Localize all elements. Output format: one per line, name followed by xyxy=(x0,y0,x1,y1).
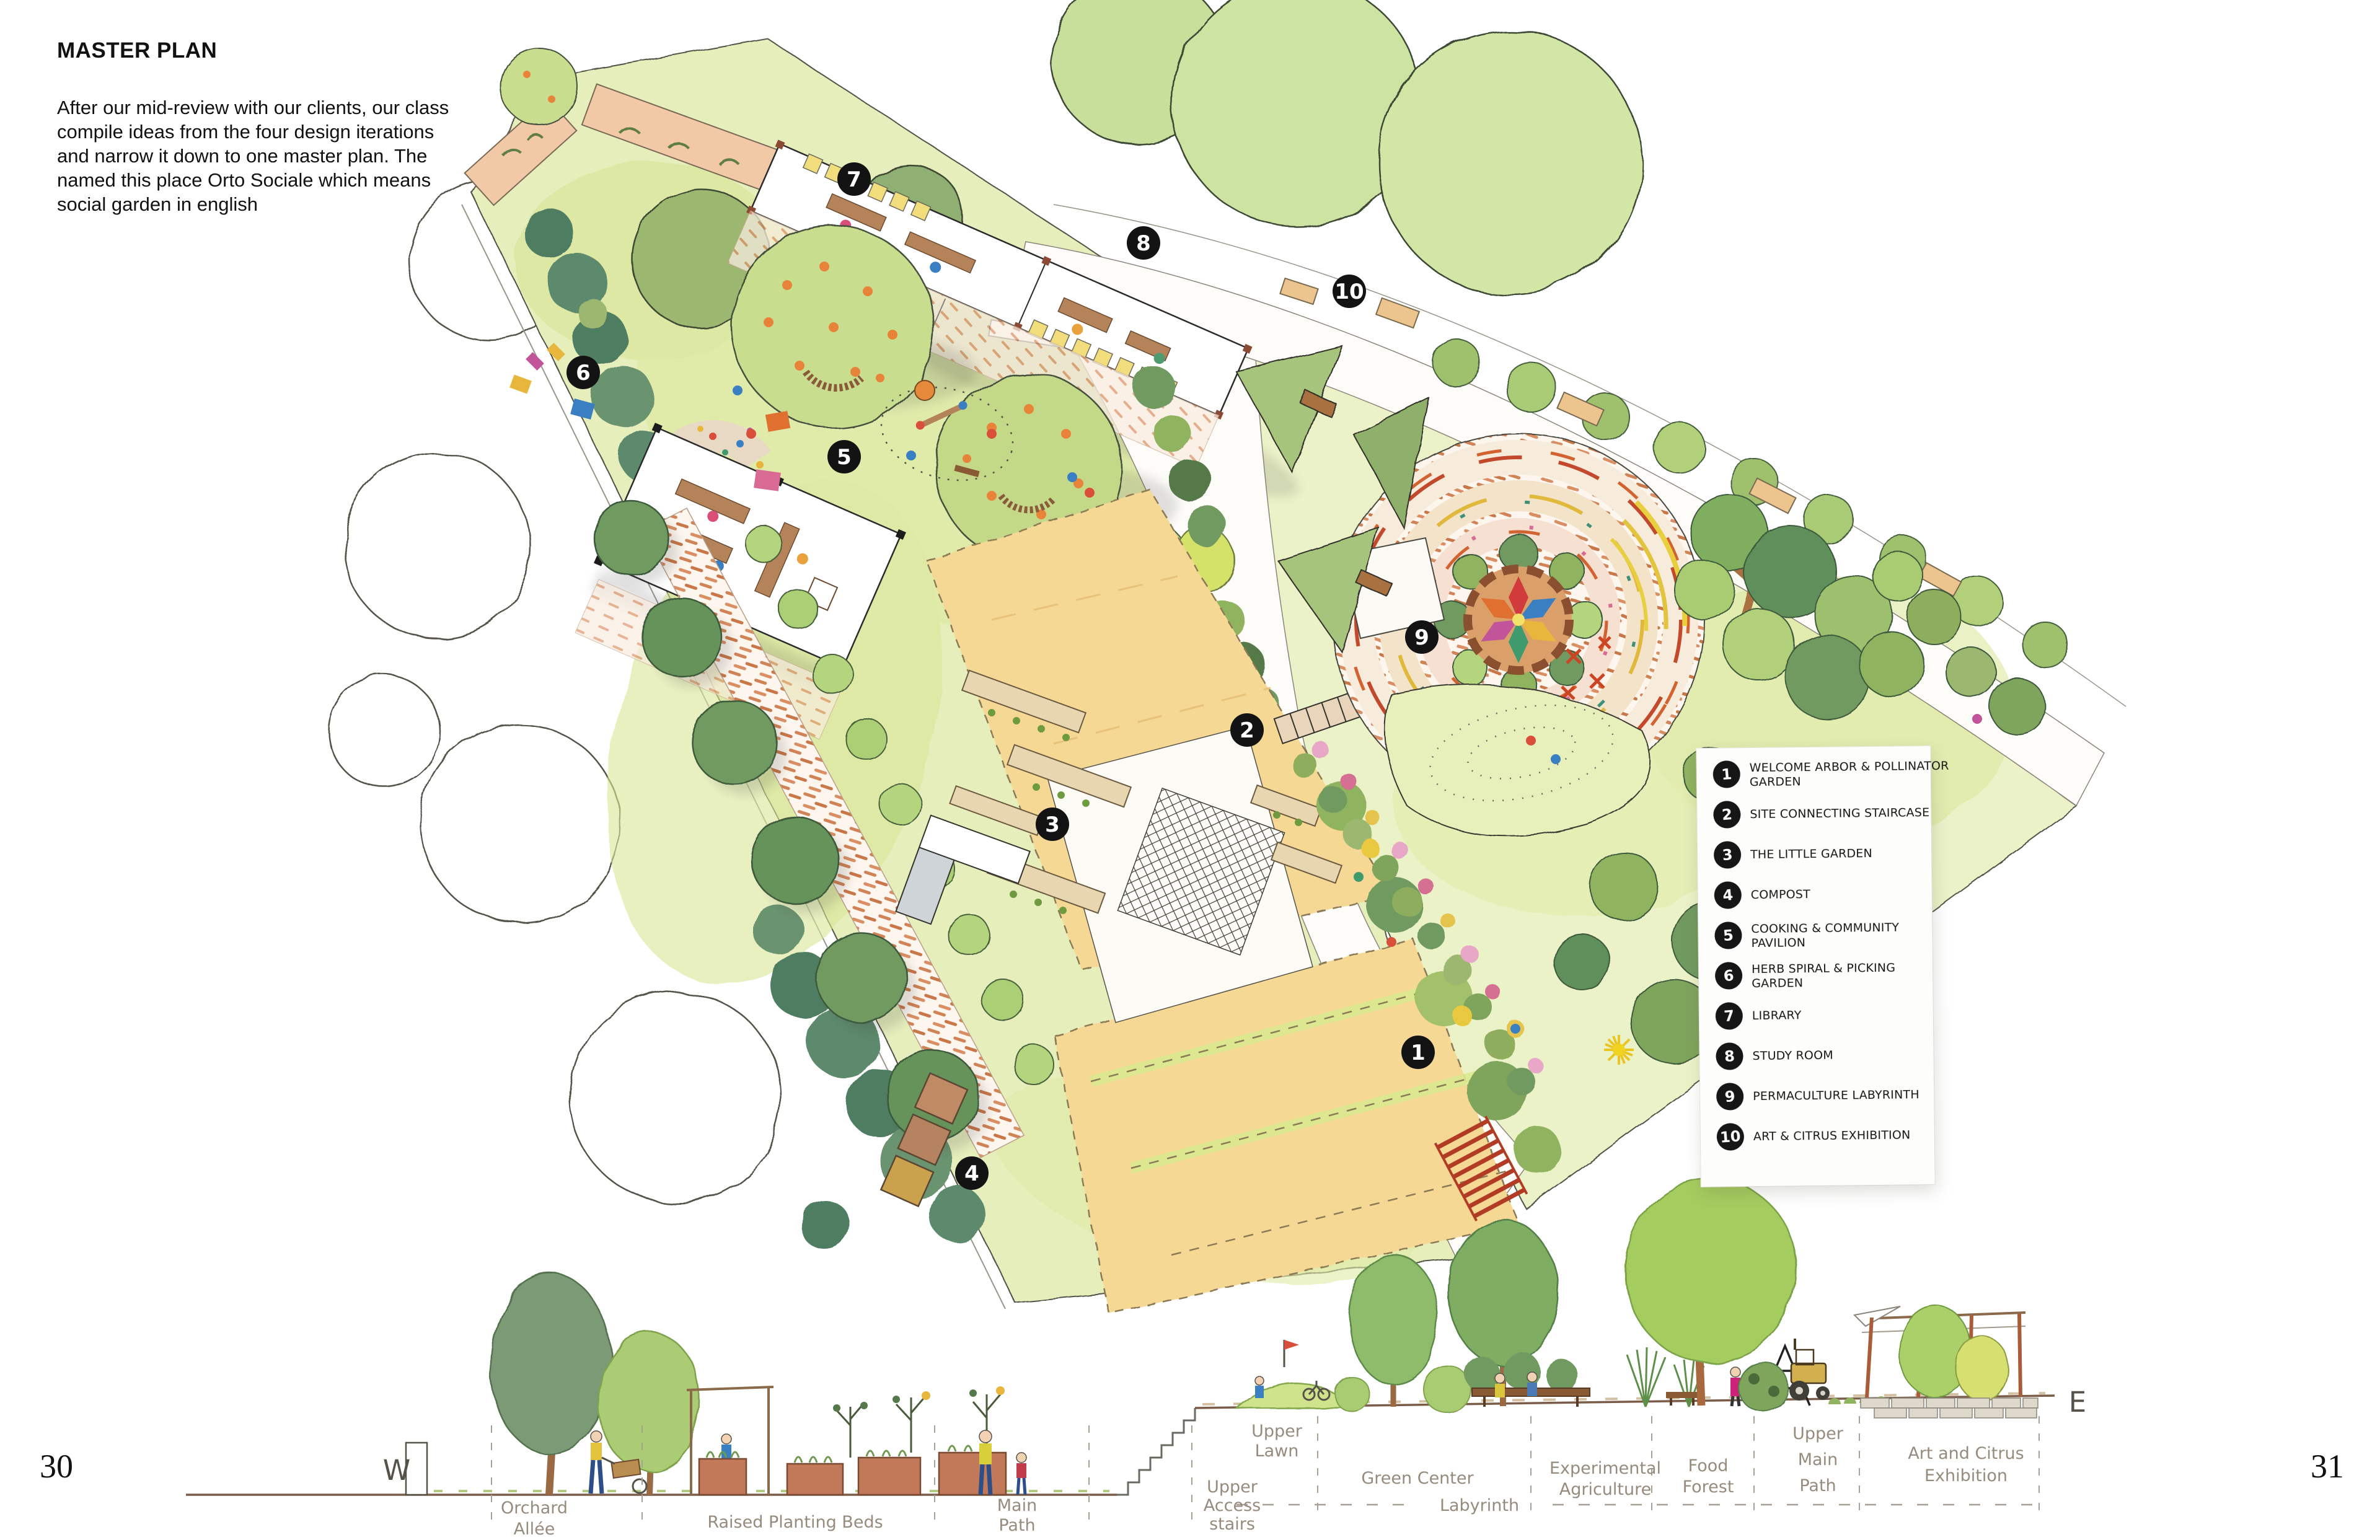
legend-number-8: 8 xyxy=(1715,1042,1744,1071)
svg-text:Art and Citrus: Art and Citrus xyxy=(1908,1444,2024,1463)
svg-text:Agriculture: Agriculture xyxy=(1559,1480,1652,1499)
svg-text:Labyrinth: Labyrinth xyxy=(1440,1496,1519,1515)
legend-item-6: 6 HERB SPIRAL & PICKINGGARDEN xyxy=(1715,960,1933,990)
legend-number-10: 10 xyxy=(1716,1122,1745,1151)
svg-text:Upper: Upper xyxy=(1251,1422,1303,1441)
svg-text:stairs: stairs xyxy=(1209,1515,1255,1534)
plan-marker-8: 8 xyxy=(1127,226,1160,260)
legend-number-3: 3 xyxy=(1712,840,1742,869)
page-title: MASTER PLAN xyxy=(57,38,466,63)
legend-number-4: 4 xyxy=(1713,881,1742,910)
svg-text:Path: Path xyxy=(998,1516,1035,1535)
legend-item-8: 8 STUDY ROOM xyxy=(1716,1041,1933,1070)
legend-item-3: 3 THE LITTLE GARDEN xyxy=(1714,839,1931,869)
legend-item-9: 9 PERMACULTURE LABYRINTH xyxy=(1716,1081,1934,1111)
yellow-burst-flower xyxy=(1604,1035,1634,1065)
plan-marker-6: 6 xyxy=(566,356,600,389)
intro-paragraph: After our mid-review with our clients, o… xyxy=(57,95,466,216)
svg-text:Path: Path xyxy=(1799,1476,1836,1495)
page-number-left: 30 xyxy=(40,1447,73,1485)
legend-number-1: 1 xyxy=(1712,760,1741,789)
legend-number-6: 6 xyxy=(1714,961,1743,990)
masterplan-drawing: 1 2 3 4 5 6 7 8 9 10 xyxy=(0,0,2380,1540)
svg-text:Experimental: Experimental xyxy=(1549,1459,1661,1478)
section-tractor xyxy=(1789,1339,1830,1401)
legend-number-9: 9 xyxy=(1715,1082,1744,1111)
svg-text:9: 9 xyxy=(1414,625,1429,650)
svg-text:Raised Planting Beds: Raised Planting Beds xyxy=(707,1513,883,1532)
svg-text:3: 3 xyxy=(1045,812,1060,837)
section-stairs xyxy=(1117,1408,1195,1495)
svg-text:Upper: Upper xyxy=(1792,1424,1844,1443)
svg-text:Forest: Forest xyxy=(1683,1477,1734,1497)
svg-text:6: 6 xyxy=(576,361,591,385)
legend-item-4: 4 COMPOST xyxy=(1714,879,1932,909)
legend-item-10: 10 ART & CITRUS EXHIBITION xyxy=(1717,1121,1934,1151)
svg-text:Main: Main xyxy=(1798,1450,1838,1469)
pergola-stone-base xyxy=(1861,1398,2038,1418)
svg-text:4: 4 xyxy=(964,1161,979,1186)
legend-number-5: 5 xyxy=(1714,921,1743,950)
svg-text:Lawn: Lawn xyxy=(1255,1441,1299,1461)
legend-number-2: 2 xyxy=(1712,800,1742,829)
legend-item-2: 2 SITE CONNECTING STAIRCASE xyxy=(1713,799,1931,829)
svg-text:Access: Access xyxy=(1204,1496,1261,1515)
svg-text:7: 7 xyxy=(847,167,862,192)
svg-text:8: 8 xyxy=(1136,231,1151,256)
svg-text:5: 5 xyxy=(837,445,852,470)
svg-text:Orchard: Orchard xyxy=(501,1498,568,1518)
svg-text:2: 2 xyxy=(1240,718,1254,743)
svg-text:Main: Main xyxy=(997,1496,1037,1515)
legend-item-1: 1 WELCOME ARBOR & POLLINATORGARDEN xyxy=(1713,759,1931,788)
plan-marker-4: 4 xyxy=(955,1156,989,1190)
portfolio-spread: 1 2 3 4 5 6 7 8 9 10 xyxy=(0,0,2380,1540)
svg-text:Green Center: Green Center xyxy=(1361,1469,1474,1488)
plan-marker-7: 7 xyxy=(837,162,871,196)
plan-marker-9: 9 xyxy=(1405,620,1439,654)
compass-east: E xyxy=(2069,1386,2086,1419)
svg-text:Allée: Allée xyxy=(514,1520,555,1539)
title-block: MASTER PLAN After our mid-review with ou… xyxy=(57,38,466,216)
plan-marker-3: 3 xyxy=(1036,807,1069,841)
svg-text:Food: Food xyxy=(1688,1456,1729,1476)
legend-item-7: 7 LIBRARY xyxy=(1716,1000,1933,1030)
section-beds xyxy=(687,1386,1006,1495)
svg-text:10: 10 xyxy=(1334,279,1364,304)
section-orchard xyxy=(490,1274,700,1495)
compass-west: W xyxy=(383,1454,411,1487)
plan-marker-10: 10 xyxy=(1333,275,1366,308)
plan-marker-1: 1 xyxy=(1401,1036,1435,1069)
legend-number-7: 7 xyxy=(1714,1001,1743,1031)
svg-text:Upper: Upper xyxy=(1207,1477,1258,1497)
plan-marker-2: 2 xyxy=(1230,713,1264,747)
legend-card: 1 WELCOME ARBOR & POLLINATORGARDEN 2 SIT… xyxy=(1696,746,1934,1187)
section-pergola xyxy=(1854,1305,2038,1418)
plan-marker-5: 5 xyxy=(827,440,861,473)
svg-text:1: 1 xyxy=(1411,1041,1426,1065)
page-number-right: 31 xyxy=(2311,1447,2344,1485)
legend-item-5: 5 COOKING & COMMUNITYPAVILION xyxy=(1714,920,1932,949)
svg-text:Exhibition: Exhibition xyxy=(1924,1466,2008,1485)
